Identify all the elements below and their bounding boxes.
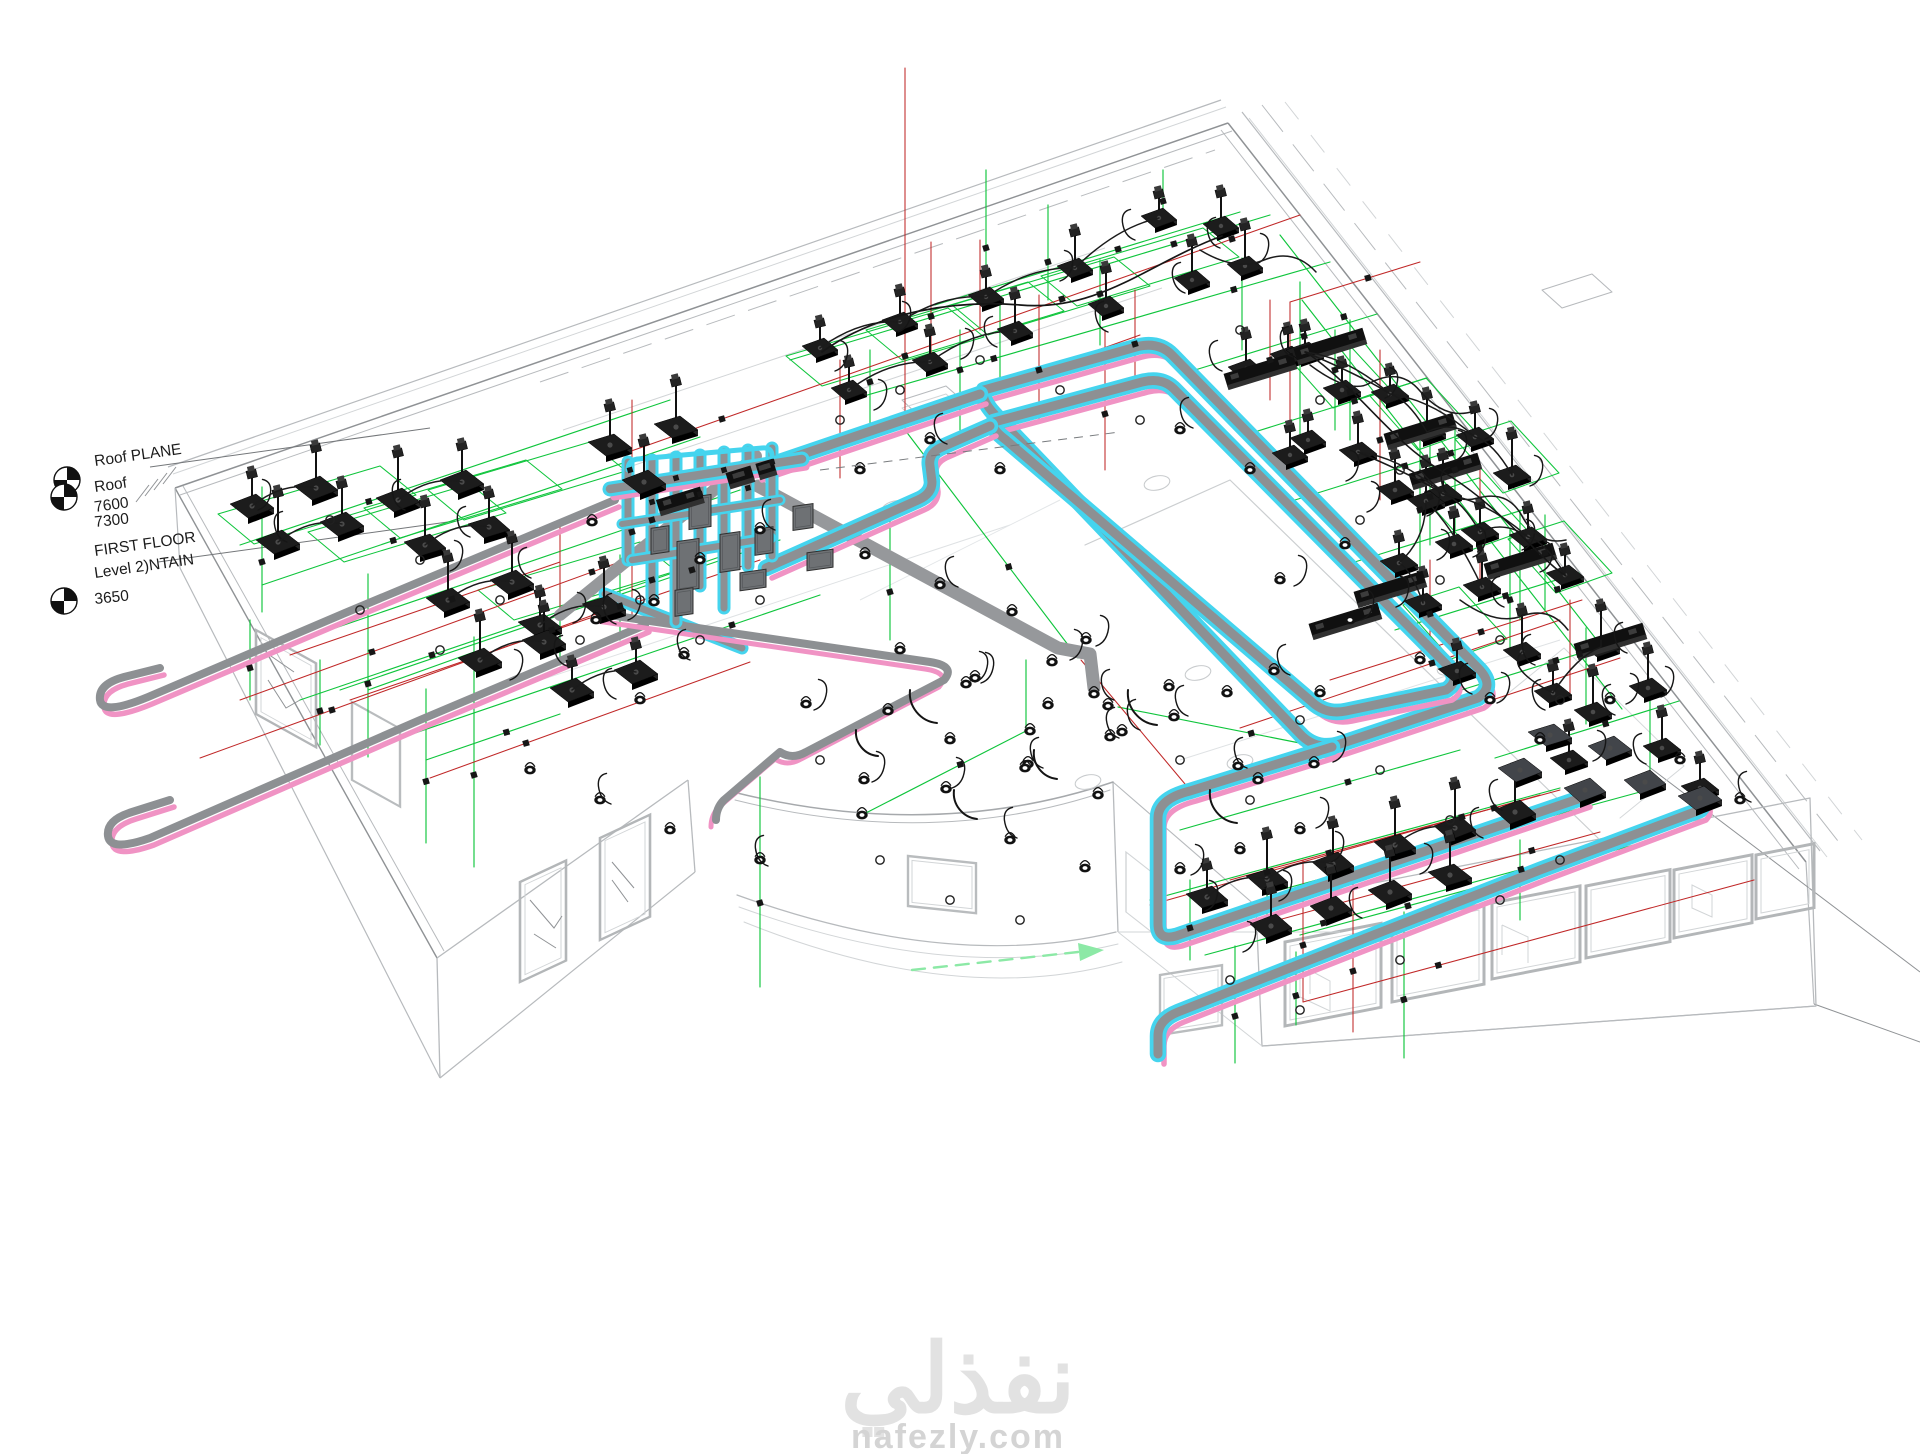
svg-text:nafezly.com: nafezly.com <box>851 1418 1065 1454</box>
svg-text:3650: 3650 <box>94 587 130 608</box>
svg-text:7300: 7300 <box>94 510 130 531</box>
